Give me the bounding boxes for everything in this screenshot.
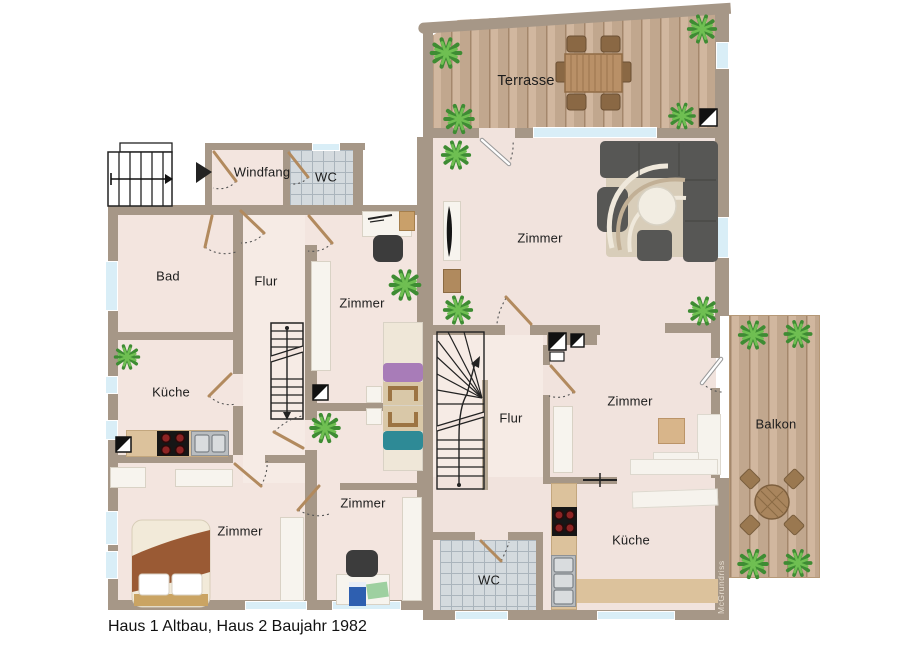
coffee-table	[658, 418, 685, 444]
wall	[233, 340, 243, 374]
plan-caption: Haus 1 Altbau, Haus 2 Baujahr 1982	[108, 618, 367, 636]
wall	[305, 483, 317, 610]
window	[105, 511, 118, 545]
window	[597, 611, 675, 620]
wall	[433, 325, 505, 335]
sideboard	[443, 201, 461, 261]
wardrobe	[553, 406, 573, 473]
sink	[191, 431, 229, 456]
sofa-section	[683, 141, 718, 262]
room-label-zimmer-wohnen: Zimmer	[517, 231, 562, 246]
wardrobe	[311, 261, 331, 371]
cabinet	[632, 489, 719, 509]
stove	[552, 507, 577, 536]
floor-plan: Windfang WC Bad Flur Zimmer Küche Zimmer…	[0, 0, 920, 651]
wall	[508, 532, 543, 540]
side-table	[443, 269, 461, 293]
folder-blue	[349, 582, 366, 606]
cabinet	[175, 469, 233, 487]
balkon-deck	[729, 315, 820, 578]
room-label-wc-haus1: WC	[315, 170, 337, 185]
wall	[433, 532, 475, 540]
cabinet	[110, 467, 146, 488]
stair-stringer	[482, 380, 488, 490]
wall	[536, 540, 543, 610]
room-label-zimmer-haus2: Zimmer	[607, 394, 652, 409]
haus2-flur-floor	[433, 335, 543, 477]
room-label-zimmer-mitte: Zimmer	[340, 496, 385, 511]
armchair	[597, 187, 628, 232]
bed-foot	[383, 382, 423, 405]
room-label-kueche-haus2: Küche	[612, 533, 650, 548]
room-label-bad: Bad	[156, 269, 180, 284]
bed-blanket-purple	[383, 363, 423, 382]
room-label-kueche-haus1: Küche	[152, 385, 190, 400]
kitchen-strip	[577, 579, 718, 603]
cabinet	[630, 459, 718, 475]
window	[105, 551, 118, 579]
room-label-wc-haus2: WC	[478, 573, 500, 588]
watermark: McGrundriss	[716, 546, 728, 614]
window	[105, 376, 118, 394]
door-opening	[479, 128, 515, 138]
office-chair	[346, 550, 378, 577]
sink	[551, 555, 576, 607]
shelf	[399, 211, 415, 231]
bed-foot	[383, 406, 423, 431]
bed-blanket-teal	[383, 431, 423, 450]
window	[105, 261, 118, 311]
wardrobe	[402, 497, 422, 601]
room-label-zimmer-links: Zimmer	[217, 524, 262, 539]
room-label-zimmer-oben: Zimmer	[339, 296, 384, 311]
window	[245, 601, 307, 610]
stove	[157, 431, 189, 456]
sofa-section	[637, 230, 672, 261]
window	[455, 611, 508, 620]
wall	[543, 345, 550, 365]
wall	[233, 215, 243, 340]
room-label-flur-haus2: Flur	[499, 411, 522, 426]
wall	[233, 406, 243, 455]
window	[105, 420, 118, 440]
window	[312, 143, 340, 151]
haus1-flur-floor	[243, 215, 305, 483]
wall	[547, 330, 597, 345]
exterior-stair	[108, 143, 173, 206]
wall	[340, 483, 417, 490]
wall	[665, 323, 715, 333]
room-label-flur-haus1: Flur	[254, 274, 277, 289]
wardrobe	[280, 517, 304, 601]
room-label-terrasse: Terrasse	[497, 73, 554, 89]
paper-green	[366, 582, 389, 600]
wall	[108, 332, 243, 340]
room-label-windfang: Windfang	[234, 165, 291, 180]
window	[716, 42, 729, 69]
nightstand	[366, 386, 382, 403]
wall	[305, 450, 317, 483]
window	[533, 127, 657, 138]
wall	[543, 395, 550, 477]
nightstand	[366, 408, 382, 425]
room-label-balkon: Balkon	[756, 417, 797, 432]
wall	[205, 143, 212, 207]
wall	[423, 28, 433, 205]
office-chair	[373, 235, 403, 262]
